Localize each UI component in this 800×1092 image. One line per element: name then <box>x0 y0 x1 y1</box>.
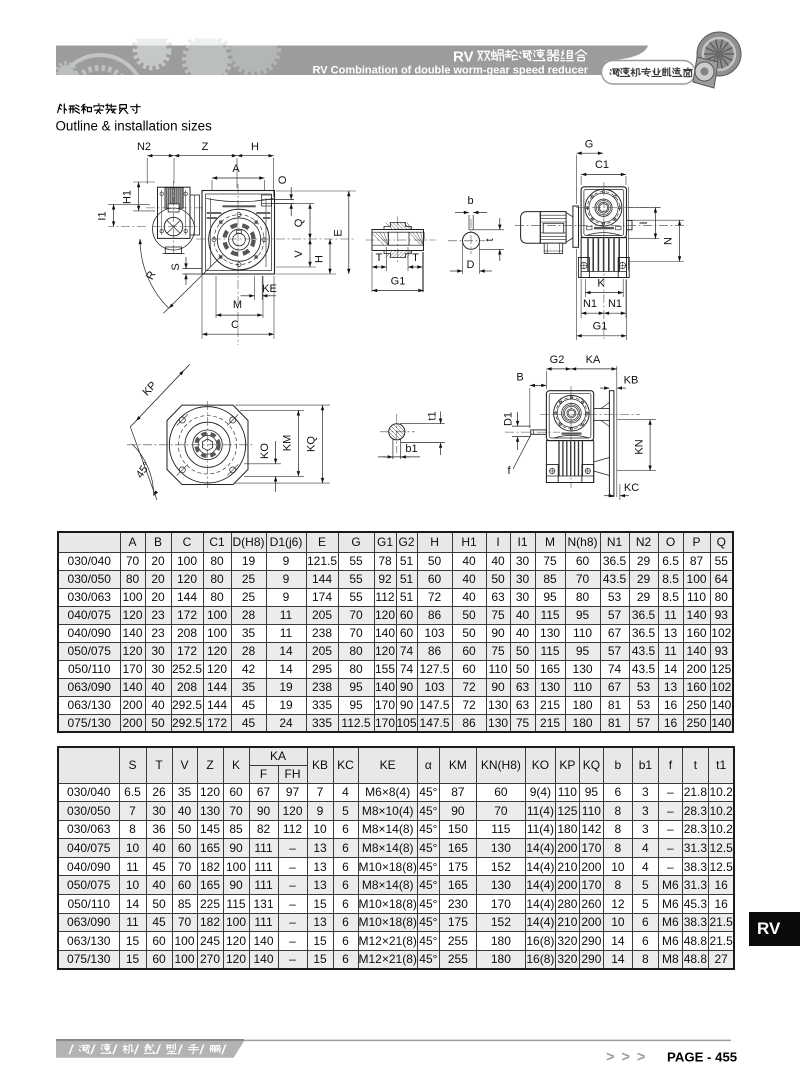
svg-text:RV Combination of double worm-: RV Combination of double worm-gear speed… <box>313 65 589 77</box>
svg-text:KQ: KQ <box>306 436 318 452</box>
svg-text:C: C <box>231 319 239 331</box>
svg-text:M: M <box>233 299 242 311</box>
svg-text:KO: KO <box>259 443 271 459</box>
svg-text:b: b <box>467 195 473 207</box>
svg-text:R: R <box>144 269 158 282</box>
svg-text:RV: RV <box>453 49 474 66</box>
svg-text:D1: D1 <box>503 412 515 426</box>
svg-text:Outline & installation sizes: Outline & installation sizes <box>56 118 213 133</box>
svg-text:f: f <box>507 465 511 477</box>
svg-text:H1: H1 <box>122 190 134 204</box>
svg-text:>>>: >>> <box>606 1050 652 1066</box>
svg-text:H: H <box>251 141 259 153</box>
svg-text:H: H <box>314 255 326 263</box>
svg-text:KN: KN <box>634 439 646 454</box>
svg-text:C1: C1 <box>595 159 609 171</box>
svg-text:Z: Z <box>202 141 209 153</box>
svg-text:N2: N2 <box>137 141 151 153</box>
svg-text:N1: N1 <box>608 298 622 310</box>
svg-text:45°: 45° <box>134 460 153 481</box>
svg-text:K: K <box>597 278 605 290</box>
svg-text:KB: KB <box>624 375 639 387</box>
svg-text:T: T <box>376 252 383 264</box>
svg-text:V: V <box>293 250 305 258</box>
svg-text:KA: KA <box>586 354 601 366</box>
svg-text:PAGE - 455: PAGE - 455 <box>667 1050 737 1065</box>
svg-text:KE: KE <box>262 283 277 295</box>
svg-text:E: E <box>333 229 345 236</box>
svg-text:G1: G1 <box>391 276 406 288</box>
svg-text:KC: KC <box>624 482 639 494</box>
svg-text:T: T <box>412 252 419 264</box>
svg-text:N: N <box>663 237 675 245</box>
svg-text:N1: N1 <box>583 298 597 310</box>
svg-text:G: G <box>585 140 594 151</box>
svg-text:B: B <box>516 372 523 384</box>
svg-text:t1: t1 <box>427 411 439 420</box>
svg-text:O: O <box>277 175 289 184</box>
svg-text:Q: Q <box>293 218 305 227</box>
svg-text:I1: I1 <box>97 211 109 220</box>
svg-text:I: I <box>638 221 650 224</box>
svg-text:D: D <box>467 259 475 271</box>
svg-text:KM: KM <box>282 435 294 452</box>
svg-text:S: S <box>170 263 182 270</box>
svg-text:G2: G2 <box>550 354 565 366</box>
svg-text:KP: KP <box>140 379 159 398</box>
svg-text:G1: G1 <box>593 321 608 333</box>
svg-text:b1: b1 <box>405 443 417 455</box>
svg-text:A: A <box>232 163 240 175</box>
svg-text:t: t <box>484 238 496 241</box>
